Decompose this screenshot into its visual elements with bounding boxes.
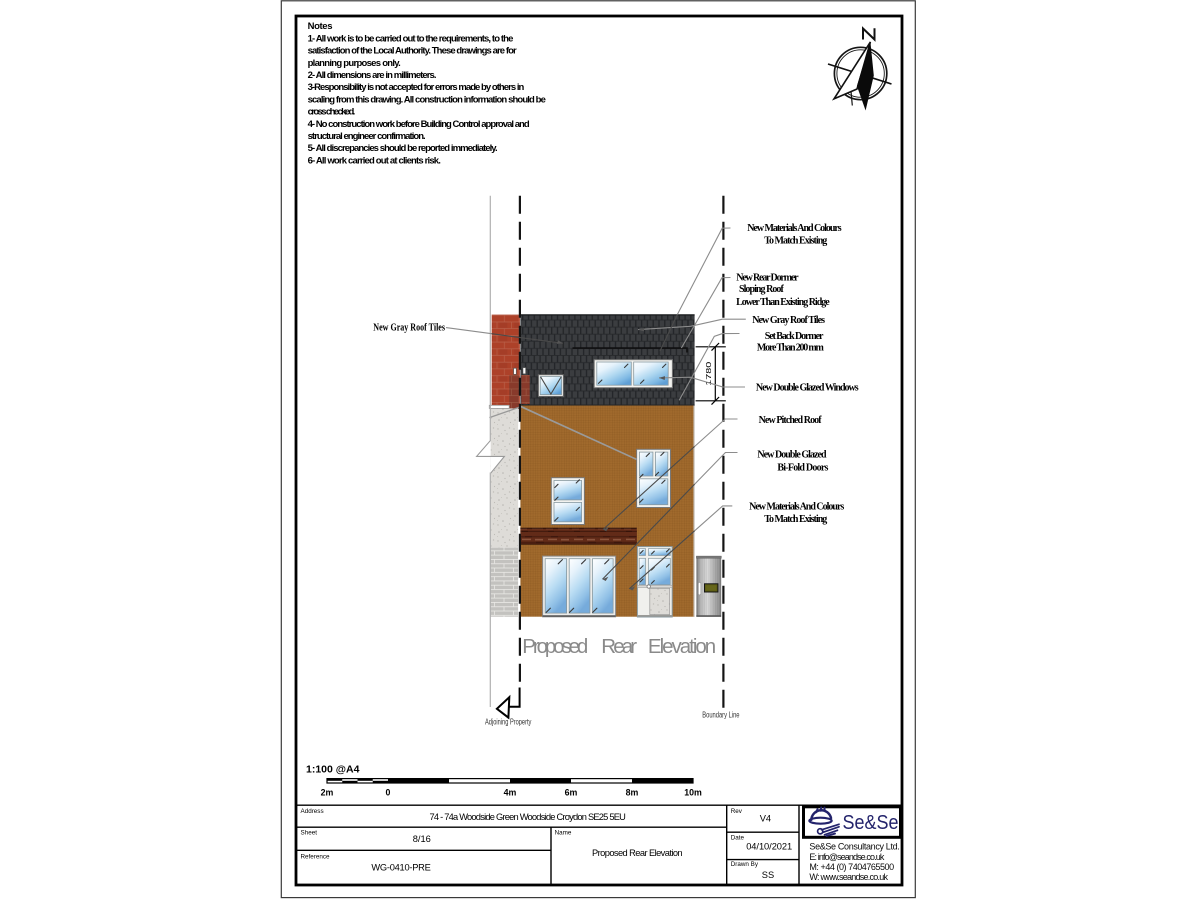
svg-text:Adjoining Property: Adjoining Property xyxy=(485,717,531,726)
svg-text:Notes: Notes xyxy=(308,21,333,32)
svg-text:E: info@seandse.co.uk: E: info@seandse.co.uk xyxy=(809,852,885,862)
svg-text:M: +44 (0) 7404765500: M: +44 (0) 7404765500 xyxy=(809,862,894,872)
svg-text:Rear: Rear xyxy=(601,635,637,658)
svg-text:New Gray Roof Tiles: New Gray Roof Tiles xyxy=(373,322,445,333)
svg-text:satisfaction of the Local Auth: satisfaction of the Local Authority. The… xyxy=(308,46,517,57)
svg-text:8/16: 8/16 xyxy=(413,834,431,844)
svg-text:8m: 8m xyxy=(626,788,639,798)
svg-text:Sheet: Sheet xyxy=(301,830,318,837)
svg-text:structural engineer confirmati: structural engineer confirmation. xyxy=(308,131,426,142)
svg-text:1:100 @A4: 1:100 @A4 xyxy=(306,764,360,776)
svg-text:Proposed Rear Elevation: Proposed Rear Elevation xyxy=(592,848,683,858)
svg-text:V4: V4 xyxy=(760,813,771,823)
svg-text:5- All discrepancies should be: 5- All discrepancies should be reported … xyxy=(308,143,498,154)
svg-text:Drawn By: Drawn By xyxy=(731,861,759,868)
svg-text:New Materials And Colours: New Materials And Colours xyxy=(749,501,844,512)
svg-text:Set Back Dormer: Set Back Dormer xyxy=(765,331,824,342)
svg-text:Boundary Line: Boundary Line xyxy=(702,711,740,720)
svg-text:6m: 6m xyxy=(565,788,578,798)
svg-text:New Pitched Roof: New Pitched Roof xyxy=(759,415,823,426)
svg-text:To Match Existing: To Match Existing xyxy=(764,514,827,525)
svg-text:Reference: Reference xyxy=(301,853,331,860)
svg-text:New Gray Roof Tiles: New Gray Roof Tiles xyxy=(752,315,825,326)
svg-text:Lower Than Existing Ridge: Lower Than Existing Ridge xyxy=(736,297,830,308)
svg-text:04/10/2021: 04/10/2021 xyxy=(746,842,792,852)
svg-text:Address: Address xyxy=(301,808,324,815)
svg-text:74 - 74a Woodside Green Woodsi: 74 - 74a Woodside Green Woodside Croydon… xyxy=(430,812,626,822)
svg-text:1- All work is to be carried o: 1- All work is to be carried out to the … xyxy=(308,33,514,44)
svg-text:More Than 200 mm: More Than 200 mm xyxy=(757,343,825,354)
svg-text:Se&Se Consultancy Ltd.: Se&Se Consultancy Ltd. xyxy=(809,842,899,852)
svg-text:6- All work carried out at cli: 6- All work carried out at clients risk. xyxy=(308,155,441,166)
svg-text:10m: 10m xyxy=(684,788,702,798)
svg-text:Date: Date xyxy=(731,835,745,842)
svg-text:3-Responsibility is not accept: 3-Responsibility is not accepted for err… xyxy=(308,82,525,93)
svg-text:4m: 4m xyxy=(504,788,517,798)
svg-text:4- No construction work before: 4- No construction work before Building … xyxy=(308,119,530,130)
svg-text:New Double Glazed Windows: New Double Glazed Windows xyxy=(756,382,859,393)
svg-text:WG-0410-PRE: WG-0410-PRE xyxy=(371,862,430,872)
svg-text:2m: 2m xyxy=(321,788,334,798)
svg-text:SS: SS xyxy=(762,870,774,880)
svg-text:New Rear Dormer: New Rear Dormer xyxy=(736,272,799,283)
svg-text:0: 0 xyxy=(386,788,391,798)
svg-text:To Match Existing: To Match Existing xyxy=(764,236,827,247)
svg-text:Rev: Rev xyxy=(731,808,743,815)
svg-text:planning purposes only.: planning purposes only. xyxy=(308,58,401,69)
svg-text:scaling from this drawing. Al: scaling from this drawing. All construct… xyxy=(308,94,546,105)
svg-text:Elevation: Elevation xyxy=(648,635,716,658)
svg-text:Name: Name xyxy=(555,830,572,837)
svg-text:New Materials And Colours: New Materials And Colours xyxy=(747,223,842,234)
svg-text:Se&Se: Se&Se xyxy=(843,811,899,834)
svg-text:Proposed: Proposed xyxy=(522,635,588,658)
svg-text:W: www.seandse.co.uk: W: www.seandse.co.uk xyxy=(809,872,888,882)
svg-text:cross checked.: cross checked. xyxy=(308,107,356,118)
svg-text:Sloping Roof: Sloping Roof xyxy=(739,284,784,295)
svg-text:New Double Glazed: New Double Glazed xyxy=(757,450,827,461)
svg-text:2- All dimensions are in milli: 2- All dimensions are in millimeters. xyxy=(308,70,437,81)
svg-text:Bi-Fold Doors: Bi-Fold Doors xyxy=(777,462,828,473)
